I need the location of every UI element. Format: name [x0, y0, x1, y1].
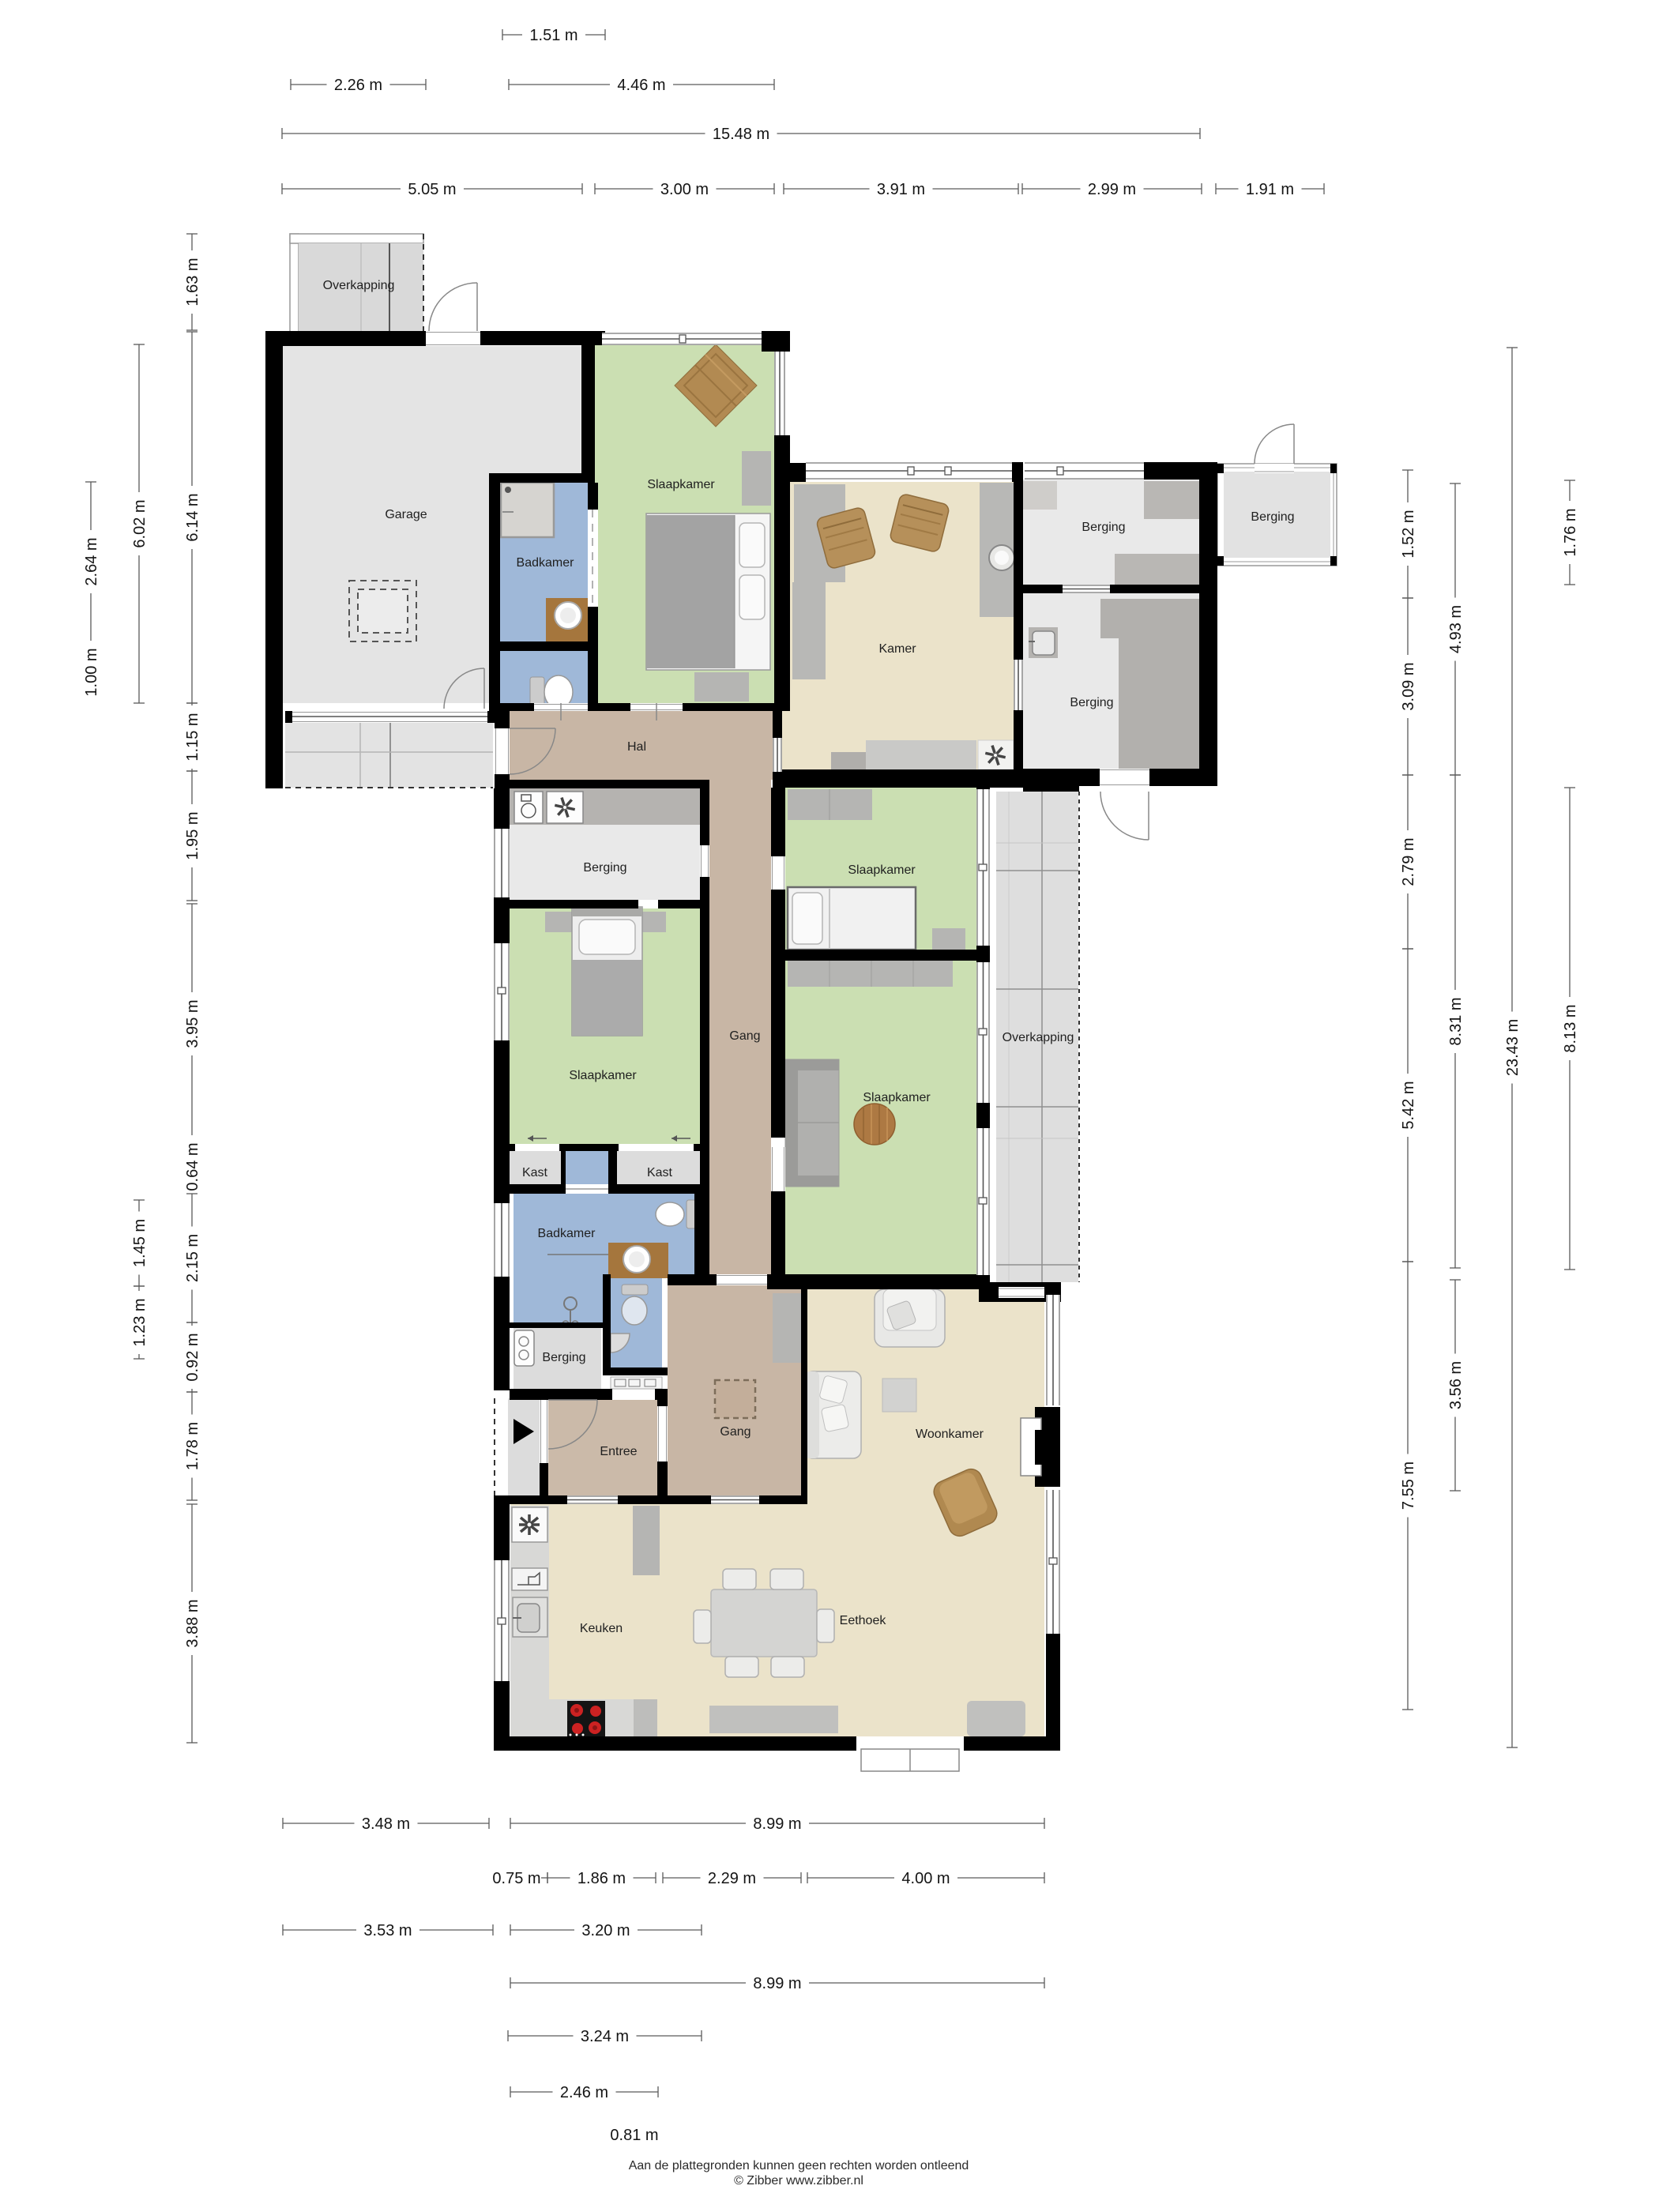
svg-text:Garage: Garage: [385, 508, 427, 521]
svg-text:0.92 m: 0.92 m: [184, 1333, 201, 1381]
svg-text:1.23 m: 1.23 m: [131, 1298, 149, 1346]
svg-text:Berging: Berging: [542, 1351, 585, 1364]
svg-text:1.95 m: 1.95 m: [184, 811, 201, 860]
svg-text:Berging: Berging: [1251, 510, 1294, 524]
svg-text:1.15 m: 1.15 m: [184, 713, 201, 761]
svg-text:3.95 m: 3.95 m: [184, 999, 201, 1048]
svg-text:Badkamer: Badkamer: [517, 556, 575, 570]
svg-text:0.64 m: 0.64 m: [184, 1142, 201, 1191]
svg-text:2.99 m: 2.99 m: [1088, 181, 1136, 198]
svg-text:Slaapkamer: Slaapkamer: [569, 1069, 637, 1082]
svg-text:23.43 m: 23.43 m: [1504, 1019, 1522, 1076]
svg-text:4.93 m: 4.93 m: [1447, 605, 1465, 653]
svg-text:Entree: Entree: [600, 1445, 637, 1458]
svg-text:1.78 m: 1.78 m: [184, 1422, 201, 1470]
svg-text:1.76 m: 1.76 m: [1562, 508, 1579, 556]
svg-text:3.24 m: 3.24 m: [581, 2028, 629, 2045]
svg-text:3.88 m: 3.88 m: [184, 1599, 201, 1647]
svg-text:Overkapping: Overkapping: [1003, 1031, 1074, 1044]
svg-text:Berging: Berging: [583, 861, 626, 875]
svg-text:2.29 m: 2.29 m: [708, 1870, 756, 1887]
svg-text:3.48 m: 3.48 m: [362, 1815, 410, 1833]
svg-text:5.42 m: 5.42 m: [1400, 1081, 1417, 1129]
svg-text:8.99 m: 8.99 m: [753, 1975, 801, 1992]
svg-text:8.13 m: 8.13 m: [1562, 1004, 1579, 1052]
svg-text:1.91 m: 1.91 m: [1246, 181, 1294, 198]
svg-text:3.00 m: 3.00 m: [660, 181, 709, 198]
svg-text:Slaapkamer: Slaapkamer: [848, 863, 916, 877]
svg-text:Aan de plattegronden kunnen ge: Aan de plattegronden kunnen geen rechten…: [629, 2159, 969, 2172]
svg-text:© Zibber www.zibber.nl: © Zibber www.zibber.nl: [734, 2174, 863, 2188]
svg-text:0.75 m: 0.75 m: [492, 1870, 540, 1887]
svg-text:3.91 m: 3.91 m: [877, 181, 925, 198]
svg-text:2.15 m: 2.15 m: [184, 1234, 201, 1282]
svg-text:3.09 m: 3.09 m: [1400, 662, 1417, 710]
svg-text:Berging: Berging: [1070, 696, 1113, 709]
svg-text:Gang: Gang: [720, 1425, 750, 1439]
svg-text:Overkapping: Overkapping: [323, 279, 395, 292]
svg-text:4.00 m: 4.00 m: [901, 1870, 950, 1887]
svg-text:4.46 m: 4.46 m: [617, 77, 665, 94]
svg-text:6.14 m: 6.14 m: [184, 493, 201, 541]
svg-text:5.05 m: 5.05 m: [408, 181, 456, 198]
svg-text:Slaapkamer: Slaapkamer: [647, 478, 715, 491]
svg-text:1.86 m: 1.86 m: [577, 1870, 626, 1887]
svg-text:1.45 m: 1.45 m: [131, 1219, 149, 1267]
svg-text:Kast: Kast: [647, 1166, 673, 1179]
svg-text:1.51 m: 1.51 m: [529, 27, 577, 44]
svg-text:2.79 m: 2.79 m: [1400, 837, 1417, 886]
svg-text:Keuken: Keuken: [580, 1622, 623, 1635]
svg-text:Woonkamer: Woonkamer: [916, 1428, 984, 1441]
svg-text:15.48 m: 15.48 m: [713, 126, 769, 143]
svg-text:8.99 m: 8.99 m: [753, 1815, 801, 1833]
svg-text:Kast: Kast: [522, 1166, 548, 1179]
svg-text:0.81 m: 0.81 m: [610, 2127, 658, 2144]
svg-text:3.56 m: 3.56 m: [1447, 1361, 1465, 1409]
svg-text:1.52 m: 1.52 m: [1400, 510, 1417, 558]
svg-text:1.00 m: 1.00 m: [83, 648, 100, 696]
svg-text:Hal: Hal: [627, 740, 646, 754]
svg-text:3.53 m: 3.53 m: [363, 1922, 412, 1939]
svg-text:2.64 m: 2.64 m: [83, 537, 100, 585]
svg-text:1.63 m: 1.63 m: [184, 258, 201, 306]
svg-text:Slaapkamer: Slaapkamer: [863, 1091, 931, 1104]
svg-text:Berging: Berging: [1082, 521, 1125, 534]
svg-text:Kamer: Kamer: [878, 642, 916, 656]
svg-text:2.46 m: 2.46 m: [560, 2084, 608, 2101]
svg-text:2.26 m: 2.26 m: [334, 77, 382, 94]
svg-text:Eethoek: Eethoek: [840, 1614, 887, 1627]
svg-text:7.55 m: 7.55 m: [1400, 1461, 1417, 1510]
svg-text:8.31 m: 8.31 m: [1447, 997, 1465, 1045]
svg-text:Badkamer: Badkamer: [538, 1227, 596, 1240]
svg-text:6.02 m: 6.02 m: [131, 499, 149, 547]
svg-text:3.20 m: 3.20 m: [581, 1922, 630, 1939]
svg-text:Gang: Gang: [729, 1029, 760, 1043]
